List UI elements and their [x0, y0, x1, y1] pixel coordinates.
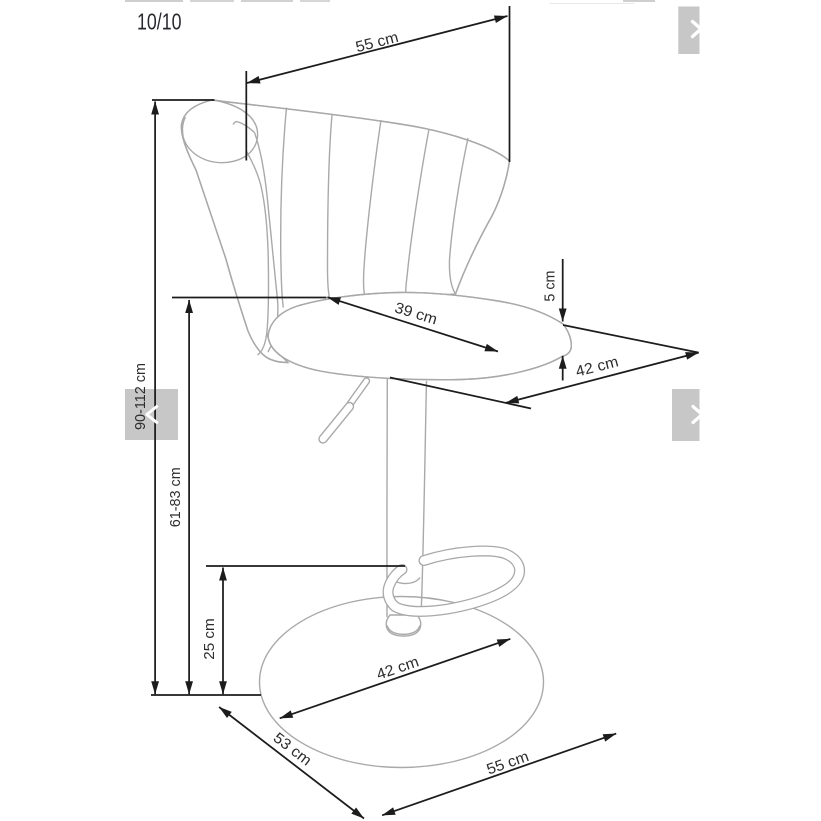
svg-text:10/10: 10/10 — [137, 9, 182, 35]
svg-text:5 cm: 5 cm — [541, 271, 558, 302]
svg-text:25 cm: 25 cm — [201, 618, 218, 660]
svg-text:61-83 cm: 61-83 cm — [167, 467, 184, 527]
svg-text:90-112 cm: 90-112 cm — [132, 363, 149, 430]
